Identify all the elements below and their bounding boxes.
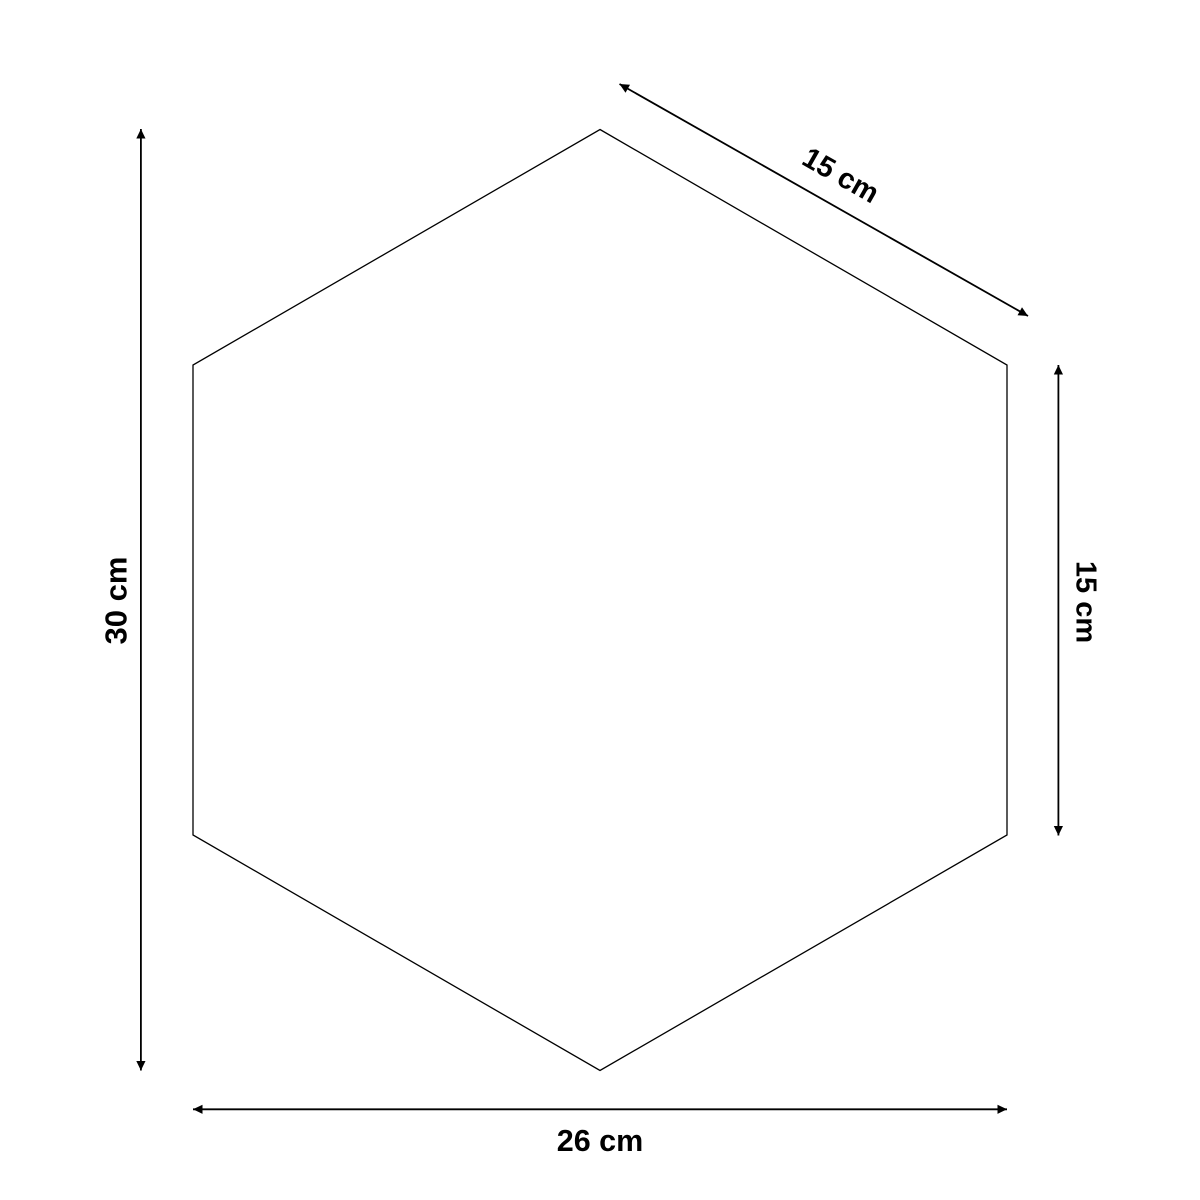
svg-text:15 cm: 15 cm [1070, 561, 1102, 643]
svg-text:30 cm: 30 cm [99, 557, 134, 645]
svg-text:15 cm: 15 cm [797, 142, 884, 210]
svg-text:26 cm: 26 cm [557, 1124, 643, 1158]
